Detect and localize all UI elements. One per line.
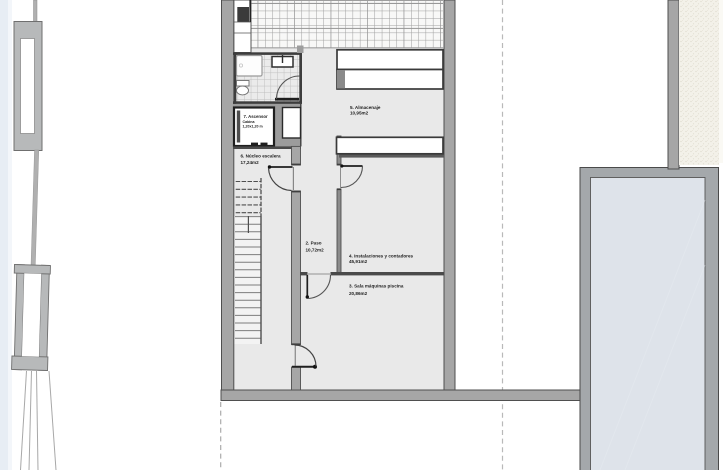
svg-text:2. Paso: 2. Paso	[306, 241, 322, 246]
svg-text:1,20x1,20 m: 1,20x1,20 m	[243, 125, 263, 129]
svg-text:10,72m2: 10,72m2	[306, 247, 325, 252]
svg-text:17,24m2: 17,24m2	[241, 160, 260, 165]
svg-text:3. Sala máquinas piscina: 3. Sala máquinas piscina	[349, 284, 404, 289]
svg-text:20,86m2: 20,86m2	[349, 291, 368, 296]
svg-text:4. Instalaciones y contadores: 4. Instalaciones y contadores	[349, 254, 414, 259]
svg-text:10,95m2: 10,95m2	[350, 110, 369, 115]
svg-text:Cabina: Cabina	[243, 120, 256, 124]
svg-text:7. Ascensor: 7. Ascensor	[244, 114, 269, 119]
svg-text:6. Núcleo escalera: 6. Núcleo escalera	[241, 153, 282, 158]
svg-text:45,91m2: 45,91m2	[349, 259, 368, 264]
